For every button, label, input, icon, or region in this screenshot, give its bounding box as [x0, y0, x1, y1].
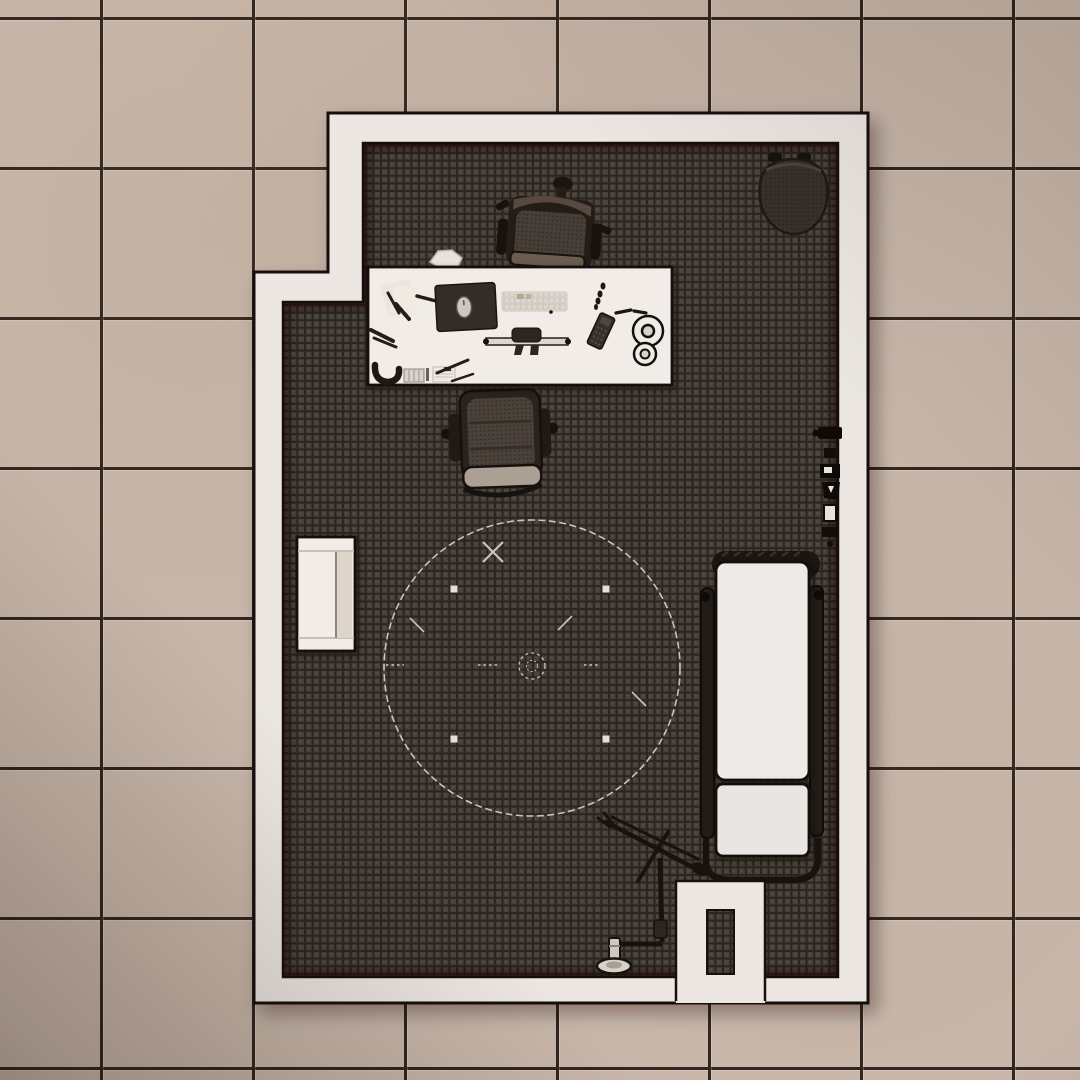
mousepad: [435, 282, 497, 331]
corner-armchair: [760, 153, 828, 234]
room-render: [0, 0, 1080, 1080]
mattress: [716, 562, 809, 780]
cabinet: [297, 537, 355, 651]
foot-cushion: [716, 784, 809, 856]
scene: [0, 0, 1080, 1080]
keyboard: [502, 292, 567, 314]
desk: [368, 267, 672, 385]
gurney-bed: [700, 551, 824, 880]
doorway: [676, 881, 765, 1003]
